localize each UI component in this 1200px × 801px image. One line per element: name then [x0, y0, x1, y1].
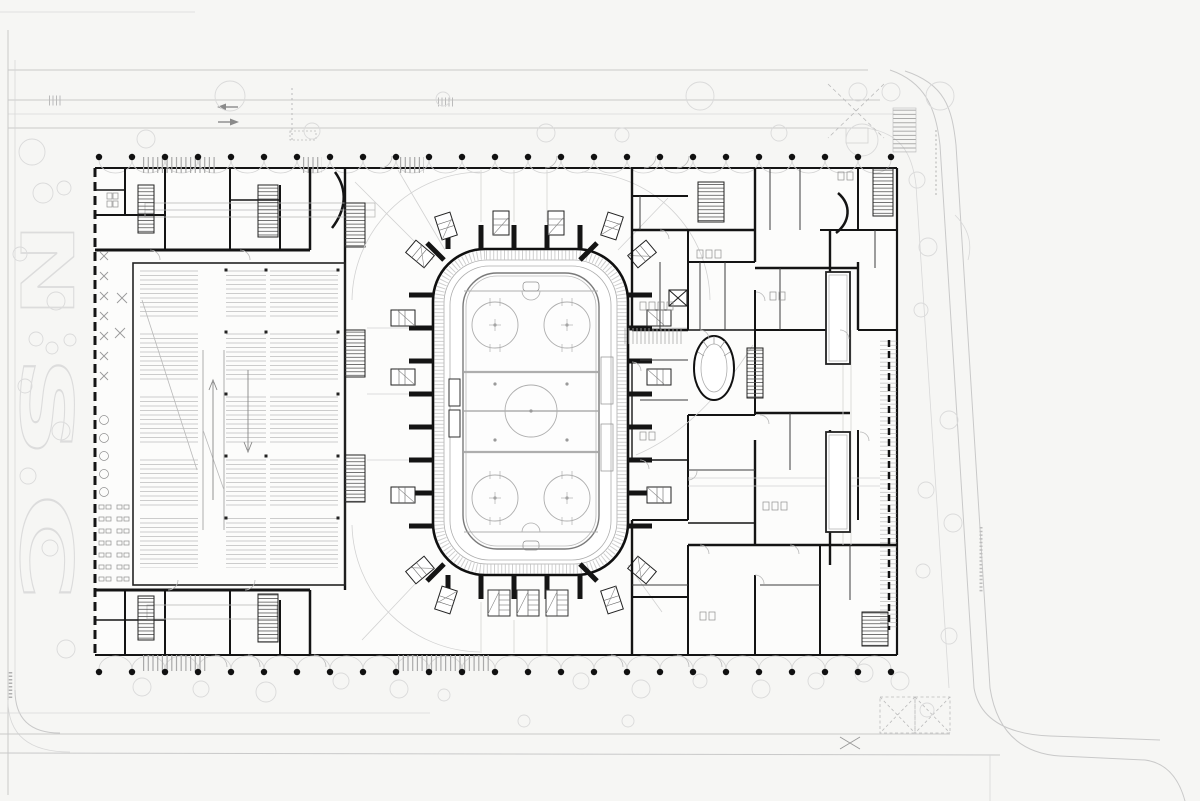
plaza-ground-letters: N S C — [4, 222, 88, 602]
east-service-strip — [880, 340, 897, 630]
ramp-comb — [622, 328, 682, 344]
elliptical-stair — [694, 336, 734, 400]
bike-racks — [893, 108, 916, 152]
striped-bay-rows — [140, 269, 340, 569]
floor-plan-canvas: N S C — [0, 0, 1200, 801]
plaza-letter-1: N — [4, 222, 88, 318]
elevator — [669, 290, 687, 306]
plaza-letter-3: C — [4, 492, 88, 602]
plaza-letter-2: S — [4, 355, 88, 459]
players-bench — [449, 410, 460, 437]
players-bench — [449, 379, 460, 406]
